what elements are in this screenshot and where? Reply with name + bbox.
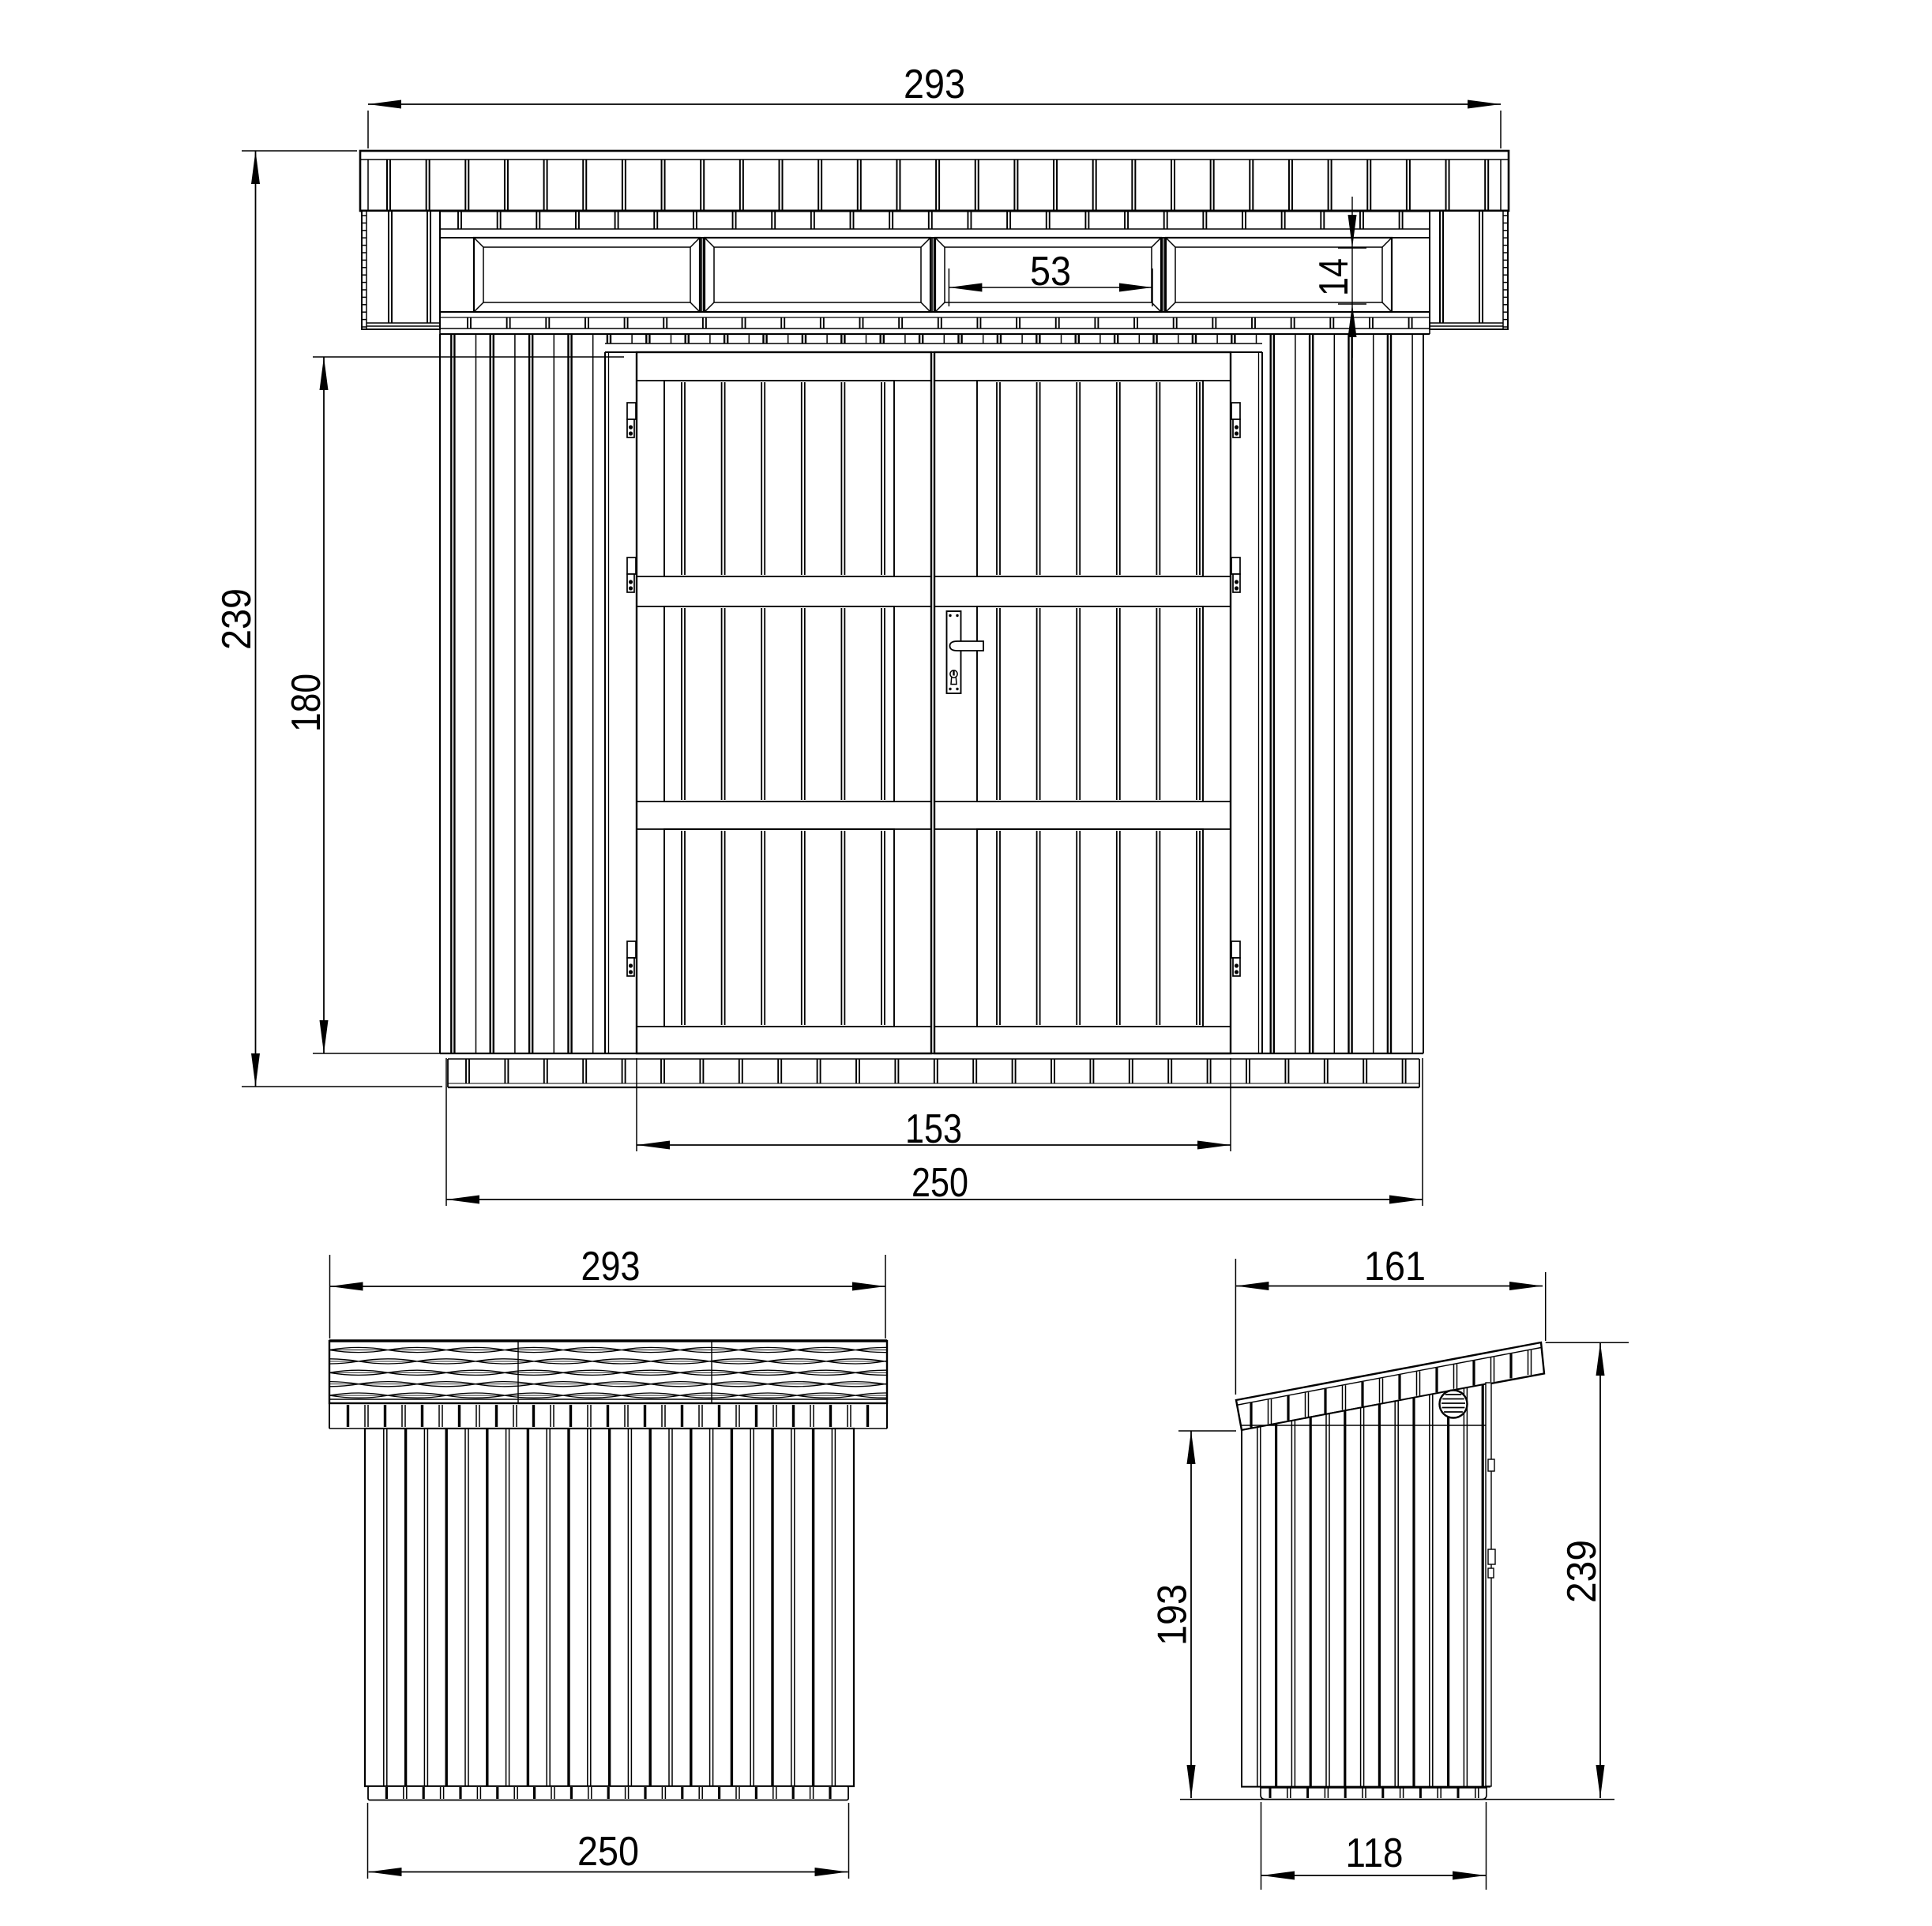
svg-text:250: 250 bbox=[577, 1829, 639, 1875]
svg-text:293: 293 bbox=[904, 62, 965, 107]
svg-text:153: 153 bbox=[905, 1106, 962, 1152]
svg-text:193: 193 bbox=[1150, 1584, 1196, 1646]
svg-text:161: 161 bbox=[1364, 1244, 1426, 1290]
svg-text:53: 53 bbox=[1030, 249, 1071, 295]
svg-text:293: 293 bbox=[581, 1244, 641, 1290]
svg-text:118: 118 bbox=[1346, 1830, 1404, 1876]
svg-text:250: 250 bbox=[911, 1160, 968, 1206]
svg-text:14: 14 bbox=[1311, 258, 1357, 296]
svg-text:180: 180 bbox=[284, 674, 329, 732]
svg-text:239: 239 bbox=[1559, 1540, 1605, 1603]
svg-text:239: 239 bbox=[214, 588, 260, 650]
